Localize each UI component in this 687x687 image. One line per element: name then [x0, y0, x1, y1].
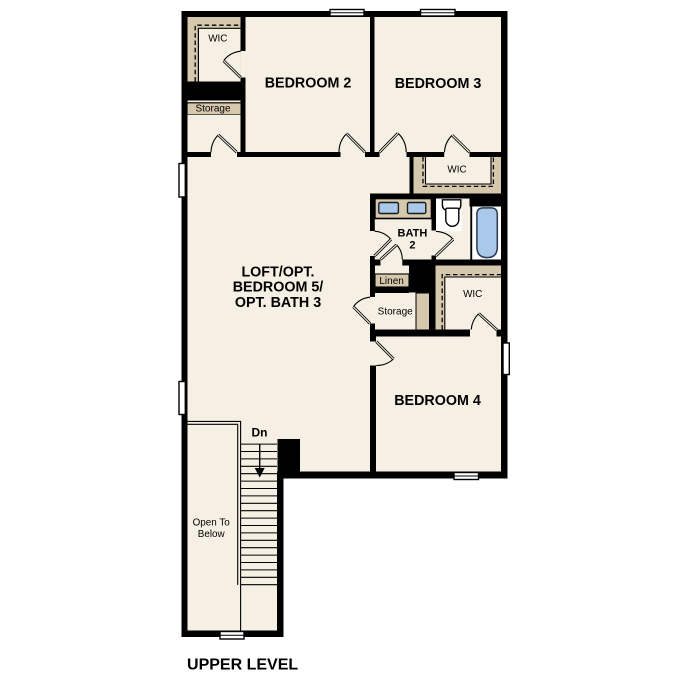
svg-text:BEDROOM 3: BEDROOM 3: [395, 76, 482, 92]
svg-text:Storage: Storage: [378, 306, 413, 317]
svg-text:OPT. BATH 3: OPT. BATH 3: [235, 295, 321, 311]
svg-text:WIC: WIC: [463, 289, 482, 300]
svg-text:Linen: Linen: [379, 276, 403, 287]
svg-text:BEDROOM 2: BEDROOM 2: [265, 75, 352, 91]
svg-text:LOFT/OPT.: LOFT/OPT.: [241, 264, 314, 280]
svg-text:BATH: BATH: [398, 227, 428, 239]
svg-text:Open To: Open To: [193, 518, 231, 529]
svg-text:Below: Below: [198, 529, 226, 540]
svg-text:BEDROOM 4: BEDROOM 4: [394, 393, 481, 409]
svg-text:UPPER LEVEL: UPPER LEVEL: [187, 656, 298, 673]
svg-text:Storage: Storage: [195, 103, 230, 114]
svg-text:Dn: Dn: [252, 425, 268, 439]
svg-text:BEDROOM 5/: BEDROOM 5/: [233, 280, 324, 296]
svg-text:WIC: WIC: [208, 34, 227, 45]
svg-text:2: 2: [409, 240, 415, 252]
svg-text:WIC: WIC: [447, 165, 466, 176]
